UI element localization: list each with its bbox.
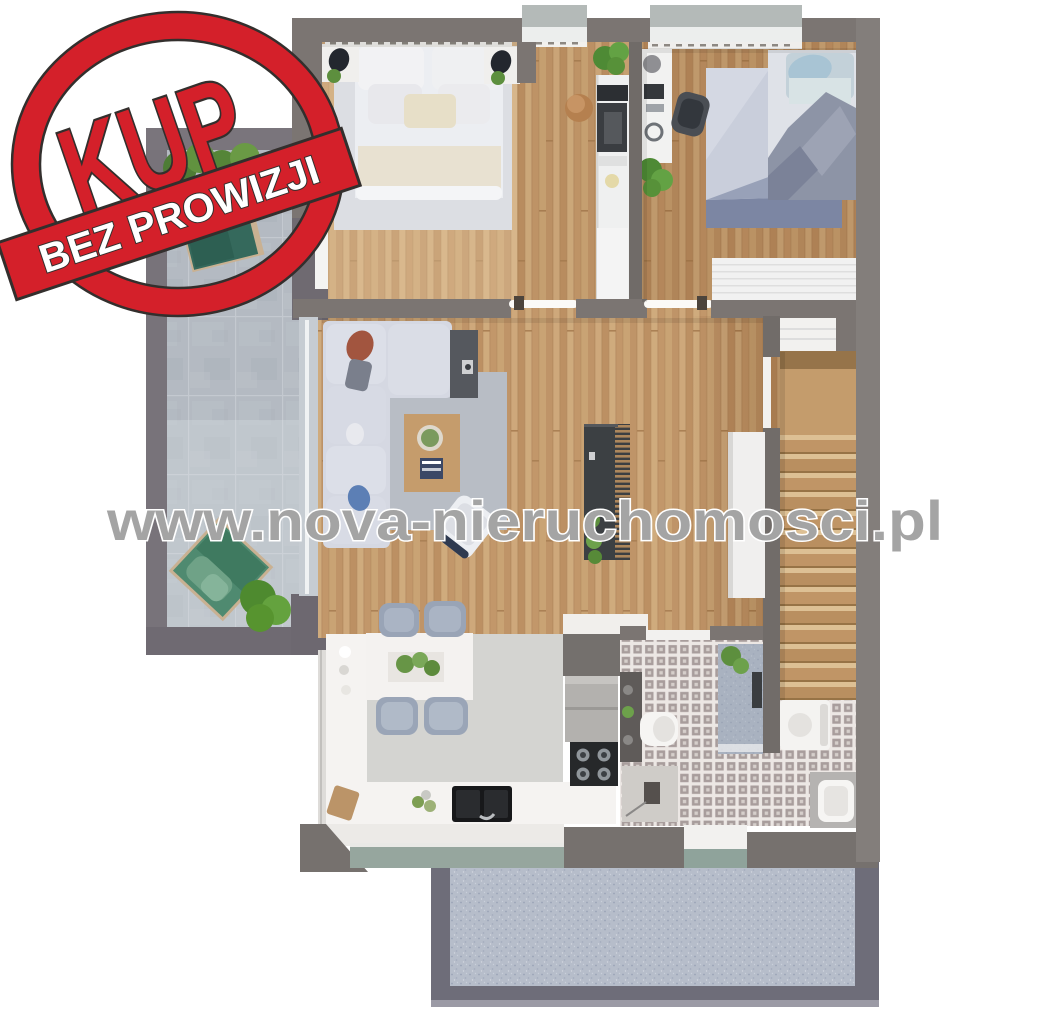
svg-text:www.nova-nieruchomosci.pl: www.nova-nieruchomosci.pl: [106, 489, 943, 552]
